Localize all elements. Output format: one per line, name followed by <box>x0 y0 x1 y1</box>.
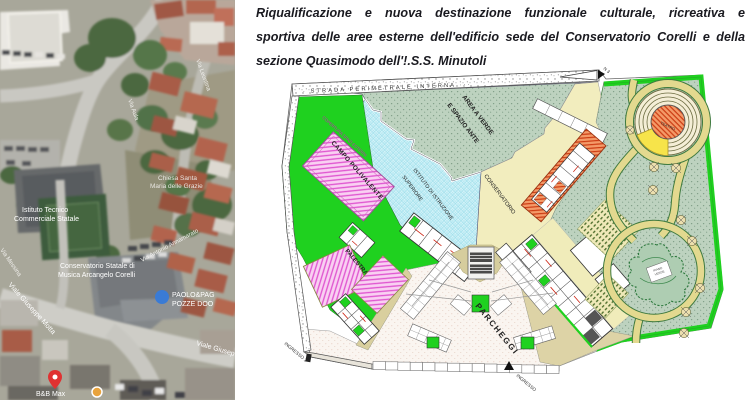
svg-text:INGRESSO: INGRESSO <box>515 373 537 393</box>
